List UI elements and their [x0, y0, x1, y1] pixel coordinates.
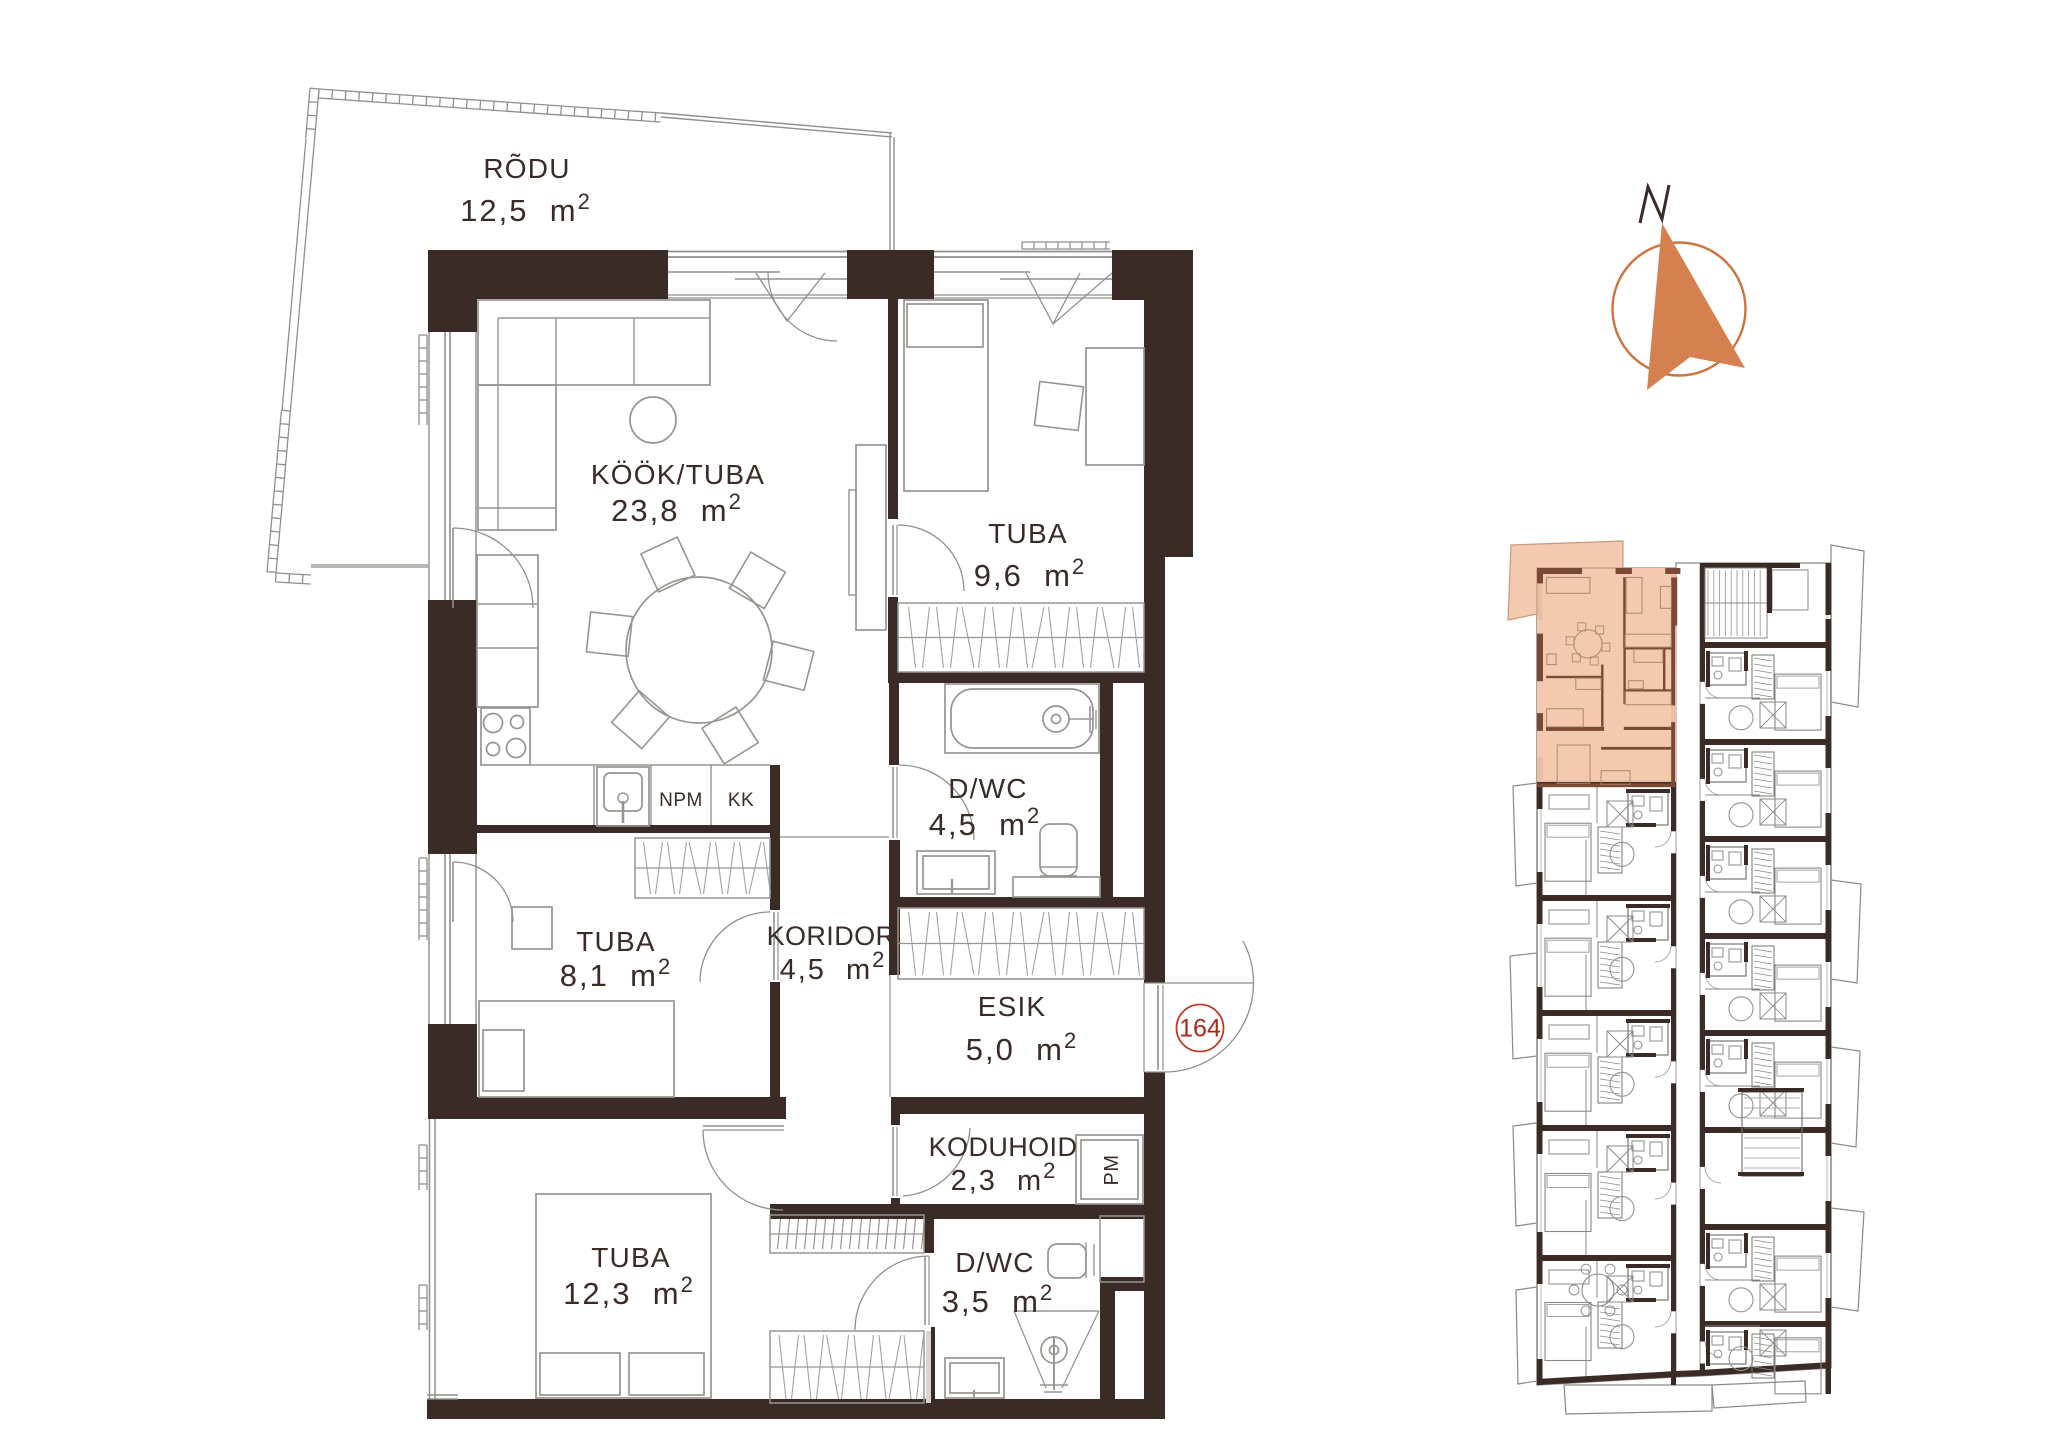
svg-text:3,5 m2: 3,5 m2 [942, 1280, 1054, 1319]
svg-text:5,0 m2: 5,0 m2 [966, 1028, 1078, 1067]
svg-text:ESIK: ESIK [978, 991, 1047, 1022]
svg-text:4,5 m2: 4,5 m2 [929, 803, 1041, 842]
svg-text:8,1 m2: 8,1 m2 [560, 954, 672, 993]
svg-text:D/WC: D/WC [948, 773, 1027, 804]
svg-text:TUBA: TUBA [591, 1242, 670, 1273]
svg-text:12,5 m2: 12,5 m2 [460, 189, 592, 228]
svg-text:NPM: NPM [659, 790, 703, 811]
svg-text:PM: PM [1101, 1155, 1123, 1186]
svg-text:D/WC: D/WC [955, 1247, 1034, 1278]
svg-text:KK: KK [728, 790, 754, 811]
svg-text:RÕDU: RÕDU [483, 153, 570, 184]
svg-text:TUBA: TUBA [988, 518, 1067, 549]
svg-text:12,3 m2: 12,3 m2 [563, 1272, 695, 1311]
svg-text:9,6 m2: 9,6 m2 [974, 554, 1086, 593]
svg-text:23,8 m2: 23,8 m2 [611, 489, 743, 528]
svg-text:KÖÖK/TUBA: KÖÖK/TUBA [591, 459, 765, 490]
svg-text:TUBA: TUBA [576, 926, 655, 957]
svg-text:164: 164 [1179, 1015, 1221, 1043]
